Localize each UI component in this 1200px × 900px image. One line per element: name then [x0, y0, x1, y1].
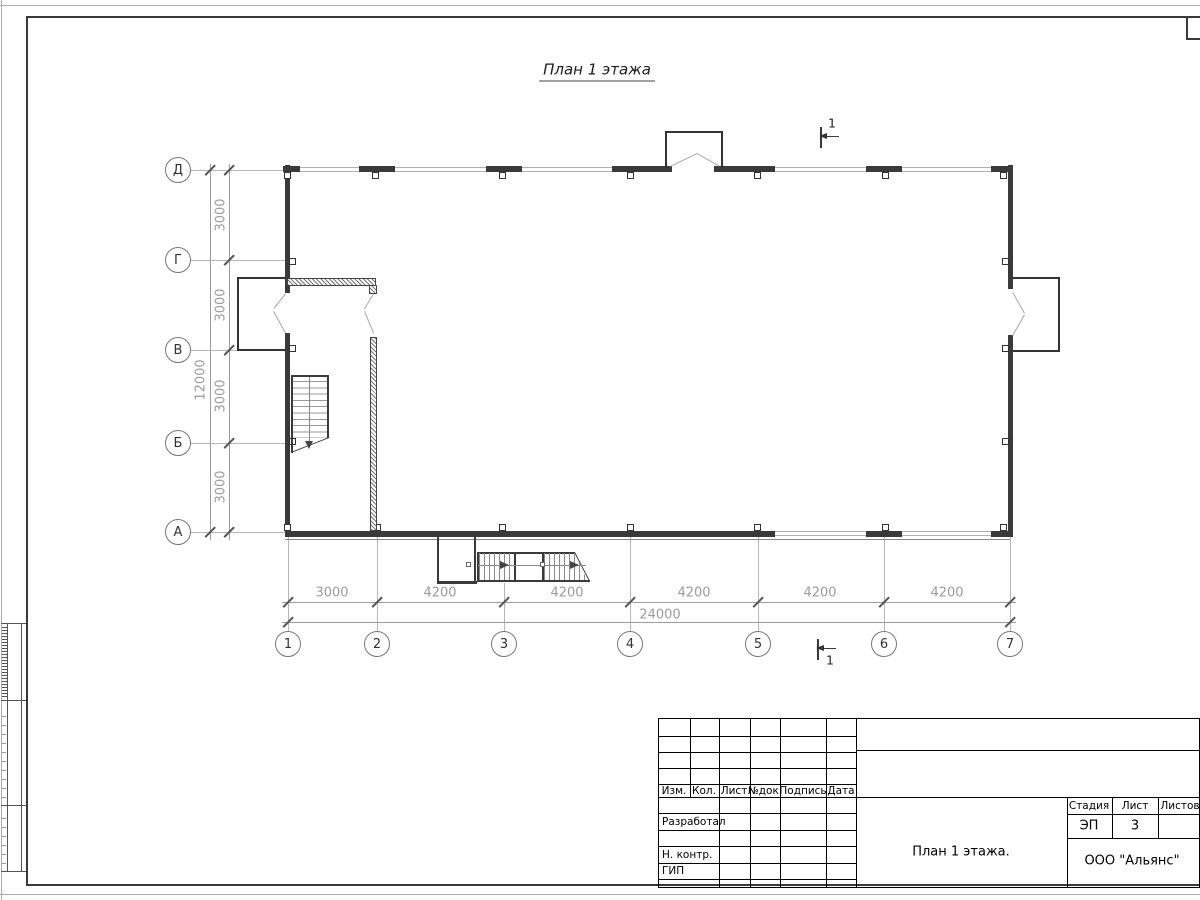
- interior-wall-hatched: [370, 337, 377, 531]
- column-tab: [372, 172, 379, 179]
- axis-line-2: [377, 537, 378, 631]
- axis-bubble-bottom: 3: [491, 631, 517, 657]
- axis-bubble-left: Г: [165, 247, 191, 273]
- title-block-line: [659, 797, 1199, 798]
- axis-line-g: [191, 260, 285, 261]
- column-tab: [627, 172, 634, 179]
- title-block-role-gip: ГИП: [662, 865, 684, 877]
- dim-label-v-seg: 3000: [214, 198, 229, 231]
- column-tab: [754, 524, 761, 531]
- title-block-col-list: Лист: [721, 785, 748, 797]
- wall-segment: [285, 165, 290, 293]
- title-block-line: [1112, 797, 1113, 838]
- stair-direction-arrow-icon: [570, 561, 579, 569]
- axis-bubble-left: В: [165, 337, 191, 363]
- title-block-line: [1067, 838, 1199, 839]
- section-mark-number: 1: [826, 653, 834, 668]
- frame-corner-box-v: [1186, 16, 1188, 39]
- door-swing: [364, 293, 374, 309]
- axis-bubble-bottom: 2: [364, 631, 390, 657]
- window-strip: [300, 167, 359, 172]
- column-tab: [289, 258, 296, 265]
- title-block-line: [1067, 797, 1068, 887]
- column-tab: [1000, 172, 1007, 179]
- title-block-line: [659, 736, 856, 737]
- margin-stamp-micro-text: [2, 627, 7, 697]
- window-strip: [522, 167, 612, 172]
- column-tab: [627, 524, 634, 531]
- dim-label-h-seg: 4200: [930, 586, 963, 601]
- frame-top: [26, 16, 1200, 18]
- dim-label-v-seg: 3000: [214, 470, 229, 503]
- margin-stamp-line: [1, 623, 26, 624]
- title-block-col-sign: Подпись: [779, 785, 826, 797]
- column-tab: [1002, 345, 1009, 352]
- axis-line-4: [630, 537, 631, 631]
- axis-line-b: [191, 443, 285, 444]
- stair-direction-arrow-icon: [500, 561, 509, 569]
- column-tab: [754, 172, 761, 179]
- title-block-line: [750, 719, 751, 887]
- section-mark-arrow-icon: [816, 645, 824, 651]
- title-block-line: [856, 719, 857, 887]
- dim-label-h-seg: 4200: [803, 586, 836, 601]
- column-tab: [1000, 524, 1007, 531]
- wall-outer-face: [285, 539, 1010, 540]
- title-block-line: [856, 750, 1199, 751]
- axis-bubble-bottom: 5: [745, 631, 771, 657]
- wall-segment: [285, 333, 290, 536]
- dim-label-h-seg: 4200: [423, 586, 456, 601]
- axis-bubble-bottom: 1: [275, 631, 301, 657]
- margin-stamp-line: [7, 623, 8, 872]
- axis-line-3: [504, 583, 505, 631]
- column-tab: [284, 172, 291, 179]
- title-block-line: [659, 813, 856, 814]
- title-block-line: [659, 879, 856, 880]
- axis-bubble-left: Б: [165, 430, 191, 456]
- margin-stamp-line: [21, 623, 22, 872]
- title-block-role-norm: Н. контр.: [662, 849, 712, 861]
- title-block-line: [1158, 797, 1159, 838]
- dim-line-vertical-total: [210, 164, 211, 540]
- stair-center-line: [309, 377, 310, 441]
- title-block-line: [659, 752, 856, 753]
- stair-steps: [293, 381, 327, 438]
- wall-segment: [1008, 165, 1013, 289]
- porch-wall: [437, 581, 477, 584]
- column-tab: [289, 345, 296, 352]
- title-block-line: [690, 719, 691, 797]
- title-block-line: [659, 863, 856, 864]
- title-block-sheets-label: Листов: [1160, 800, 1199, 812]
- title-block-line: [719, 719, 720, 887]
- interior-wall-hatched: [287, 278, 376, 286]
- window-strip: [902, 531, 991, 536]
- margin-stamp-line: [1, 871, 26, 872]
- dim-line-horizontal-segments: [282, 602, 1016, 603]
- dim-label-v-total: 12000: [194, 359, 209, 400]
- axis-line-6: [884, 537, 885, 631]
- frame-corner-box-h: [1186, 38, 1200, 40]
- axis-line-1: [288, 537, 289, 631]
- column-tab: [499, 172, 506, 179]
- left-annex: [237, 277, 285, 351]
- title-block-stage-label: Стадия: [1069, 800, 1109, 812]
- column-tab: [1002, 438, 1009, 445]
- title-block-line: [659, 830, 856, 831]
- axis-bubble-bottom: 7: [997, 631, 1023, 657]
- dim-label-h-seg: 3000: [315, 586, 348, 601]
- title-block-company: ООО "Альянс": [1084, 854, 1179, 869]
- column-tab: [1002, 258, 1009, 265]
- porch-wall: [474, 537, 476, 583]
- title-block-sheet-value: 3: [1131, 819, 1139, 834]
- stair-steps: [544, 553, 587, 580]
- window-strip: [775, 531, 866, 536]
- porch-wall: [437, 537, 439, 583]
- wall-segment: [991, 531, 1013, 537]
- title-block-sheet-label: Лист: [1122, 800, 1149, 812]
- dim-line-vertical-segments: [229, 164, 230, 540]
- stair-wall: [327, 375, 329, 438]
- axis-line-d: [191, 170, 285, 171]
- column-tab: [284, 524, 291, 531]
- section-mark-number: 1: [828, 116, 836, 131]
- title-block-col-doc: №док.: [748, 785, 782, 797]
- axis-bubble-bottom: 4: [617, 631, 643, 657]
- stair-edge: [477, 580, 590, 582]
- wall-segment: [1008, 335, 1013, 536]
- margin-stamp-line: [1, 700, 26, 701]
- stair-wall: [291, 375, 329, 377]
- door-swing: [364, 311, 374, 334]
- title-block-line: [659, 768, 856, 769]
- frame-left: [26, 16, 28, 886]
- wall-segment: [612, 166, 672, 172]
- margin-stamp-micro-text: [2, 710, 6, 798]
- title-block-col-izm: Изм.: [662, 785, 687, 797]
- sheet-edge-bottom: [0, 894, 1200, 895]
- axis-line-7: [1010, 537, 1011, 631]
- title-block-stage-value: ЭП: [1080, 819, 1099, 834]
- dim-label-h-seg: 4200: [677, 586, 710, 601]
- axis-line-a: [191, 532, 285, 533]
- axis-line-v: [191, 350, 237, 351]
- title-block-doc-title: План 1 этажа.: [912, 845, 1010, 860]
- column-tab: [882, 524, 889, 531]
- column-tab: [882, 172, 889, 179]
- title-block-line: [1067, 814, 1199, 815]
- stair-landing-marker: [540, 562, 545, 567]
- column-tab: [499, 524, 506, 531]
- axis-line-5: [758, 537, 759, 631]
- margin-stamp-micro-text: [2, 812, 6, 864]
- page-title: План 1 этажа: [539, 61, 655, 82]
- axis-bubble-left: Д: [165, 157, 191, 183]
- section-mark-arrow-icon: [819, 133, 827, 139]
- dim-label-v-seg: 3000: [214, 379, 229, 412]
- margin-stamp-line: [1, 805, 26, 806]
- wall-segment: [285, 531, 775, 537]
- stair-cut-line: [291, 437, 330, 453]
- axis-bubble-left: А: [165, 519, 191, 545]
- window-strip: [395, 167, 486, 172]
- title-block-role-developed: Разработал: [662, 816, 726, 828]
- wall-segment: [866, 531, 902, 537]
- dim-label-h-total: 24000: [639, 608, 680, 623]
- sheet-edge-top: [0, 5, 1200, 6]
- axis-bubble-bottom: 6: [871, 631, 897, 657]
- title-block-line: [780, 719, 781, 887]
- drawing-sheet: План 1 этажа 12000 3000 3000 3000 3000 3…: [0, 0, 1200, 900]
- title-block-col-date: Дата: [827, 785, 854, 797]
- right-annex: [1013, 277, 1060, 352]
- stair-edge: [542, 552, 544, 582]
- dim-label-h-seg: 4200: [550, 586, 583, 601]
- title-block-col-kol: Кол.: [692, 785, 716, 797]
- title-block-line: [659, 846, 856, 847]
- window-strip: [902, 167, 991, 172]
- dim-label-v-seg: 3000: [214, 288, 229, 321]
- title-block: Изм. Кол. Лист №док. Подпись Дата Разраб…: [658, 718, 1200, 888]
- stair-landing-marker: [466, 562, 471, 567]
- stair-edge: [514, 552, 516, 582]
- window-strip: [775, 167, 866, 172]
- title-block-line: [826, 719, 827, 887]
- wall-segment: [714, 166, 775, 172]
